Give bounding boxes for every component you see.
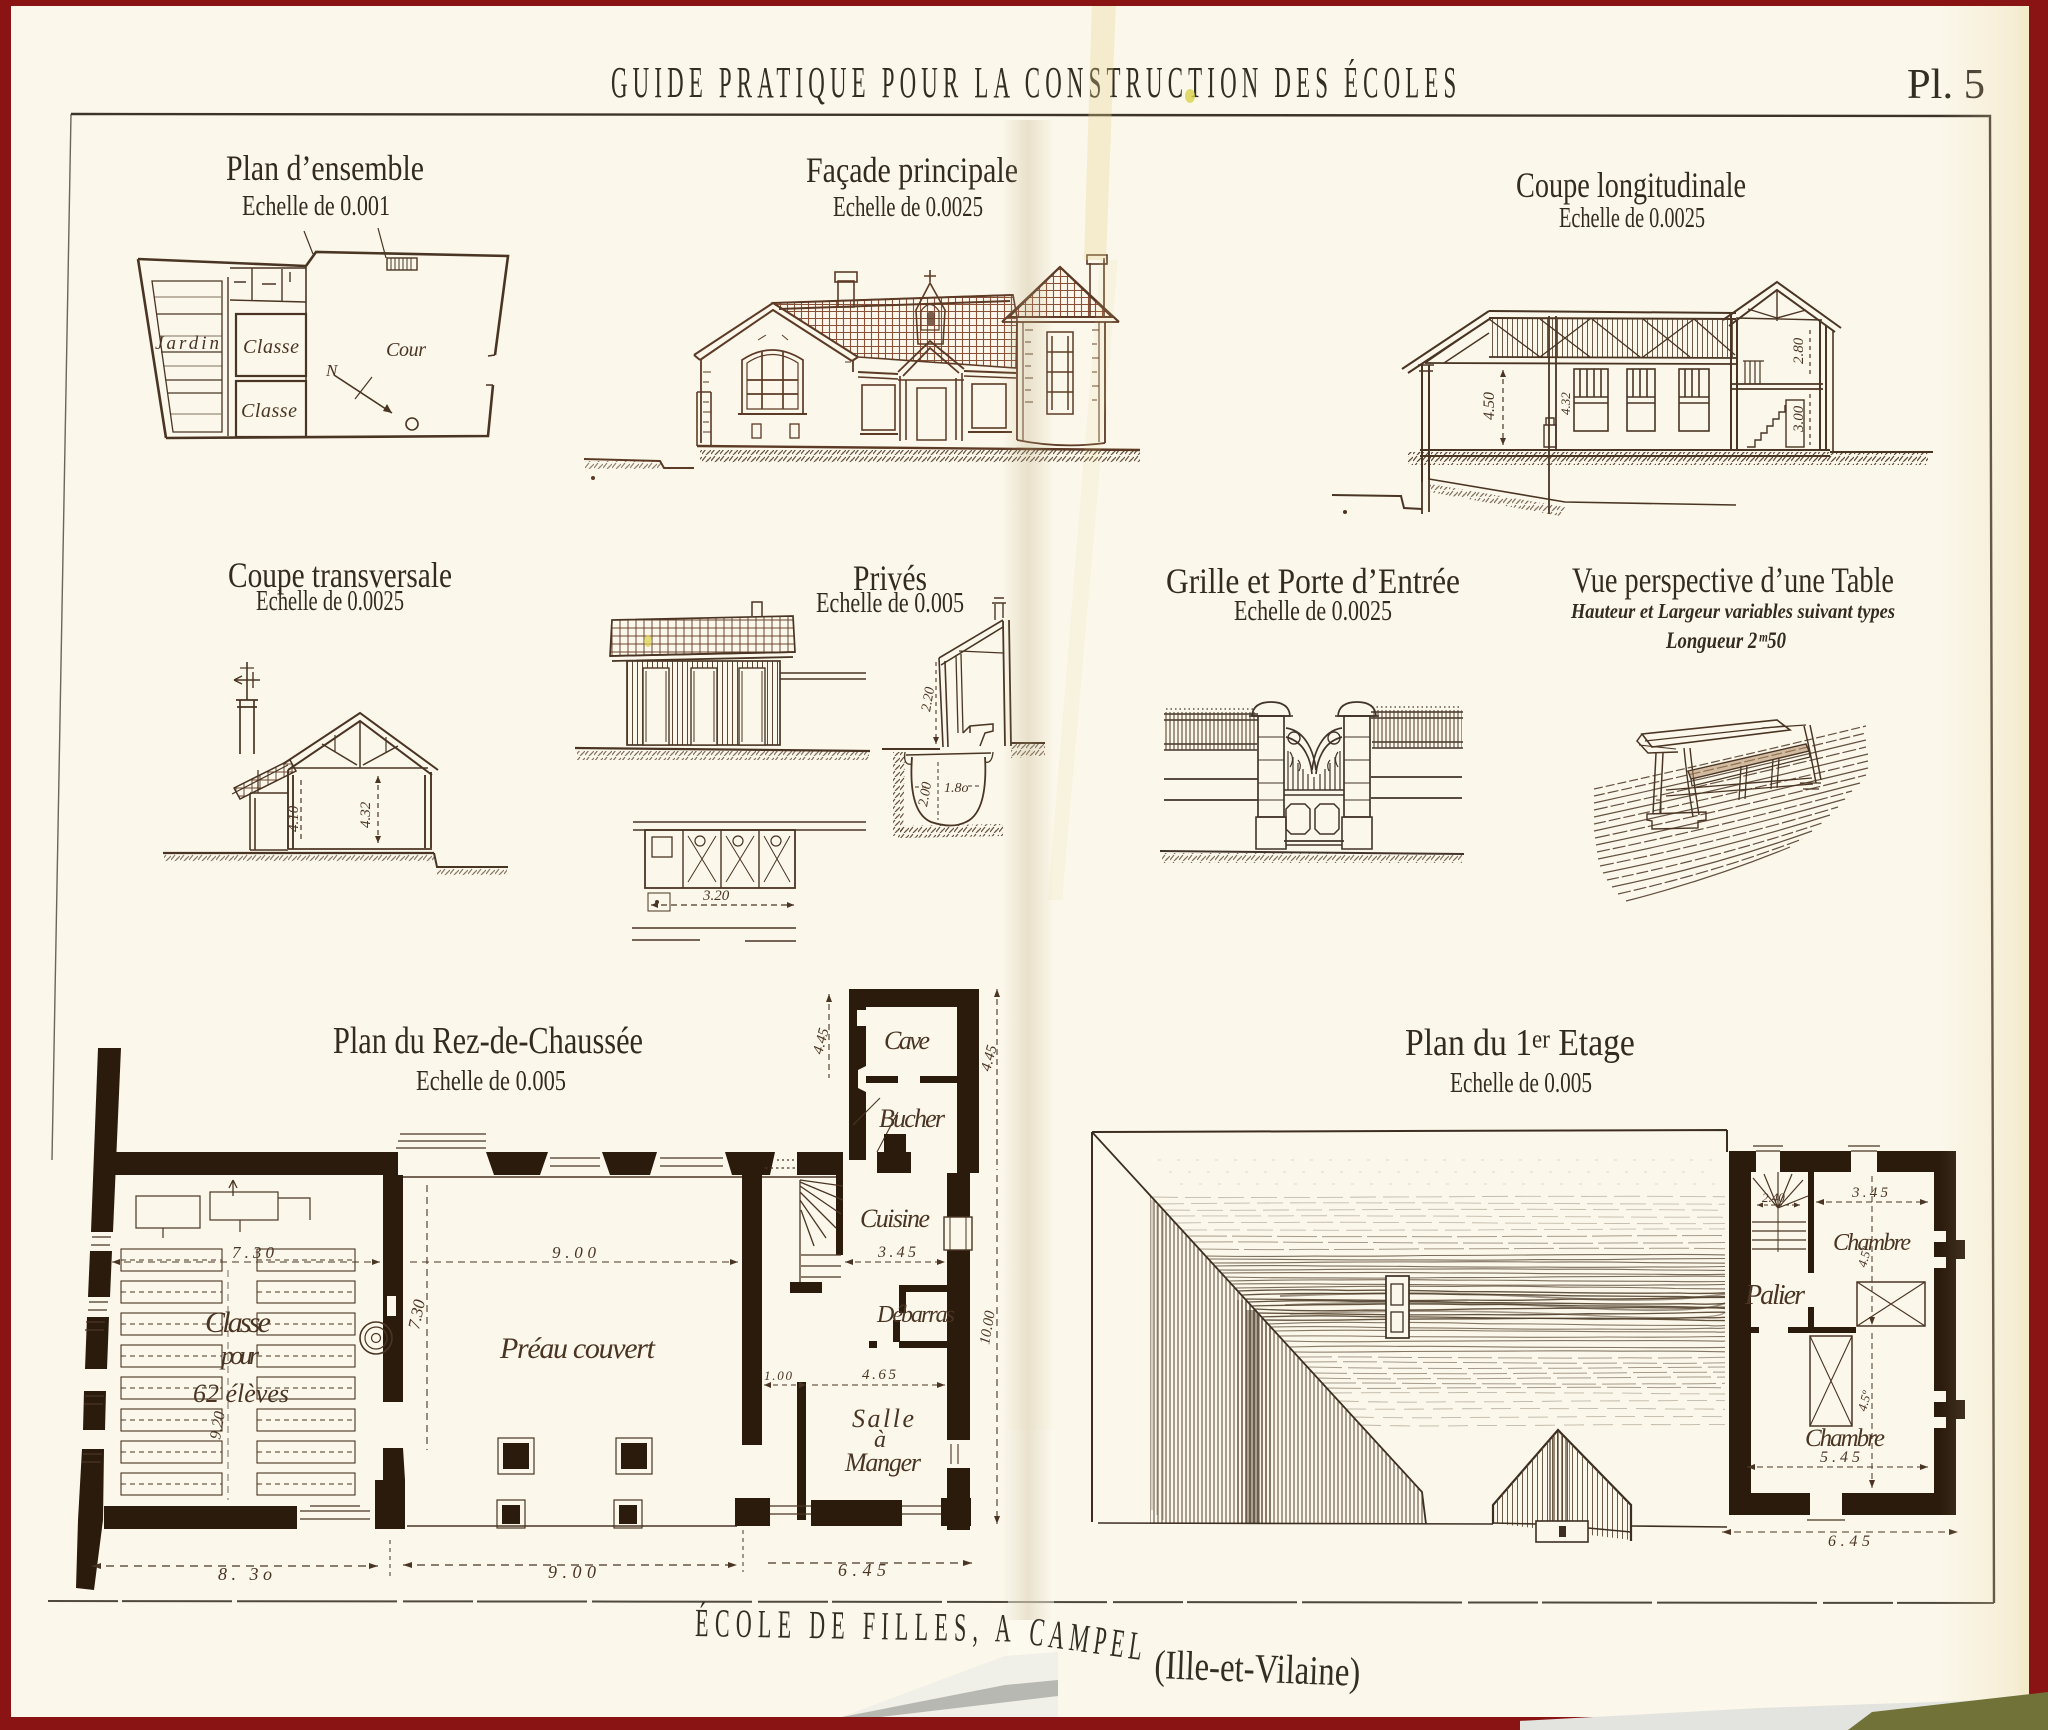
svg-text:Manger: Manger xyxy=(844,1448,922,1477)
svg-text:pour: pour xyxy=(219,1341,260,1370)
svg-text:Echelle de 0.0025: Echelle de 0.0025 xyxy=(1234,596,1392,627)
svg-text:Cuisine: Cuisine xyxy=(860,1204,930,1233)
svg-text:4.32: 4.32 xyxy=(358,801,374,828)
svg-text:Façade principale: Façade principale xyxy=(806,150,1018,190)
svg-text:7.30: 7.30 xyxy=(232,1243,275,1262)
svg-text:Grille et Porte d’Entrée: Grille et Porte d’Entrée xyxy=(1166,561,1460,601)
svg-text:Cave: Cave xyxy=(884,1026,930,1055)
svg-text:1.8o: 1.8o xyxy=(944,781,969,796)
svg-text:4.50: 4.50 xyxy=(1481,392,1498,420)
svg-text:Cour: Cour xyxy=(386,339,426,361)
svg-text:4.32: 4.32 xyxy=(1558,392,1573,415)
svg-text:6.45: 6.45 xyxy=(838,1560,886,1580)
svg-text:Longueur 2 ᵐ50: Longueur 2 ᵐ50 xyxy=(1665,628,1786,653)
svg-text:Echelle de 0.0025: Echelle de 0.0025 xyxy=(256,586,404,617)
svg-text:Classe: Classe xyxy=(243,336,299,358)
svg-text:3.45: 3.45 xyxy=(1851,1185,1889,1201)
svg-text:Echelle de 0.001: Echelle de 0.001 xyxy=(242,191,390,222)
svg-text:Coupe longitudinale: Coupe longitudinale xyxy=(1516,165,1746,205)
svg-text:Echelle de 0.0025: Echelle de 0.0025 xyxy=(1559,203,1705,234)
svg-text:Palier: Palier xyxy=(1744,1280,1805,1311)
svg-text:Chambre: Chambre xyxy=(1805,1425,1885,1452)
svg-text:Classe: Classe xyxy=(205,1306,271,1339)
svg-text:Echelle de 0.005: Echelle de 0.005 xyxy=(416,1066,566,1097)
svg-text:ÉCOLE DE FILLES, A: ÉCOLE DE FILLES, A xyxy=(695,1600,1015,1650)
svg-text:Hauteur et Largeur variables s: Hauteur et Largeur variables suivant typ… xyxy=(1570,599,1895,623)
svg-text:Débarras: Débarras xyxy=(876,1302,955,1328)
svg-text:3.00: 3.00 xyxy=(1791,405,1807,433)
svg-text:Echelle de 0.0025: Echelle de 0.0025 xyxy=(833,192,983,223)
svg-text:Bucher: Bucher xyxy=(879,1104,946,1133)
svg-text:2.40: 2.40 xyxy=(1762,1190,1785,1205)
svg-text:Préau couvert: Préau couvert xyxy=(499,1332,656,1365)
svg-text:3.45: 3.45 xyxy=(877,1244,916,1261)
svg-text:Classe: Classe xyxy=(241,400,297,422)
svg-text:62 élèves: 62 élèves xyxy=(193,1379,289,1408)
svg-text:4.65: 4.65 xyxy=(862,1367,897,1383)
svg-text:Vue perspective d’une Table: Vue perspective d’une Table xyxy=(1572,560,1894,600)
svg-text:9.00: 9.00 xyxy=(552,1243,597,1262)
svg-text:6.45: 6.45 xyxy=(1828,1533,1870,1550)
svg-text:2.80: 2.80 xyxy=(1791,337,1807,364)
svg-text:3.20: 3.20 xyxy=(702,888,730,904)
svg-text:Plan d’ensemble: Plan d’ensemble xyxy=(226,148,424,188)
svg-text:1.00: 1.00 xyxy=(764,1368,793,1383)
svg-text:(Ille-et-Vilaine): (Ille-et-Vilaine) xyxy=(1154,1641,1362,1695)
svg-text:5.45: 5.45 xyxy=(1820,1449,1860,1466)
svg-text:Plan du 1er Etage: Plan du 1er Etage xyxy=(1405,1021,1635,1063)
svg-text:Echelle de 0.005: Echelle de 0.005 xyxy=(816,588,964,619)
svg-text:4.10: 4.10 xyxy=(286,805,302,832)
svg-text:9.00: 9.00 xyxy=(548,1562,596,1582)
svg-text:Plan du Rez-de-Chaussée: Plan du Rez-de-Chaussée xyxy=(333,1020,643,1062)
svg-text:Echelle de 0.005: Echelle de 0.005 xyxy=(1450,1068,1592,1099)
